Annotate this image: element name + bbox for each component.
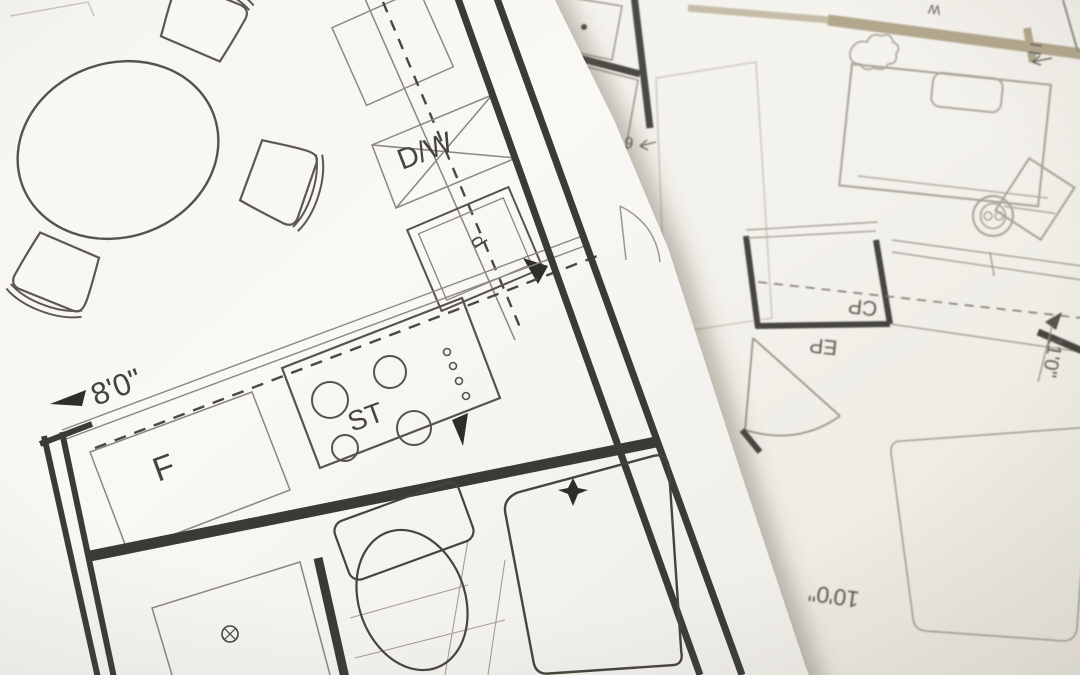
photo-vignette	[0, 0, 1080, 675]
blueprint-photo: W	[0, 0, 1080, 675]
blueprint-photo-canvas: W	[0, 0, 1080, 675]
